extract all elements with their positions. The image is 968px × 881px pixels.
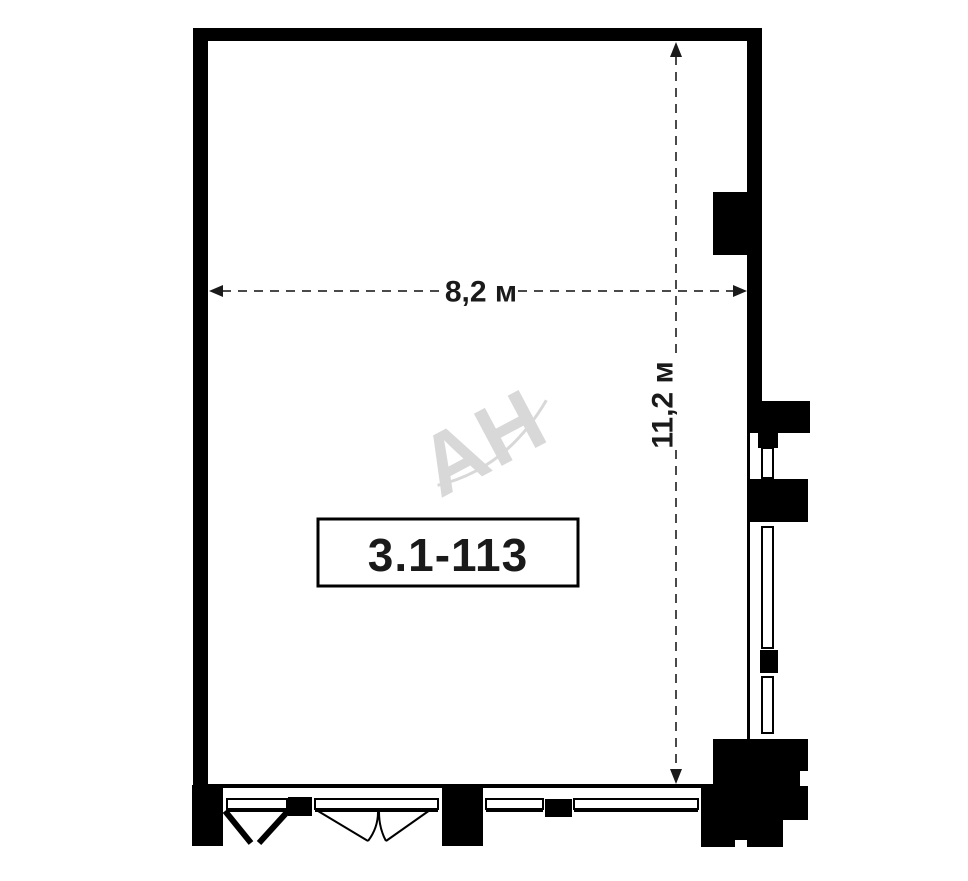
width-dim-arrow-right <box>733 285 747 297</box>
height-dimension: 11,2 м <box>647 42 683 784</box>
width-dimension-label: 8,2 м <box>445 276 517 309</box>
right-facade-column-a <box>747 401 810 433</box>
right-window-3 <box>762 677 773 733</box>
width-dim-arrow-left <box>209 285 223 297</box>
swing-arc-left <box>368 812 378 841</box>
swing-arc-right <box>379 812 386 841</box>
bottom-door-mullion <box>288 797 312 816</box>
entrance-doors <box>225 810 430 843</box>
bottom-window-1 <box>227 799 287 809</box>
height-dim-arrow-bottom <box>670 769 682 784</box>
bottom-center-pier <box>442 786 483 846</box>
right-facade-mullion <box>760 650 778 673</box>
unit-label-text: 3.1-113 <box>368 529 528 581</box>
agency-watermark: АН <box>404 365 573 516</box>
watermark-text: АН <box>404 371 562 516</box>
height-dimension-label: 11,2 м <box>647 361 680 448</box>
bottom-window-2-sill <box>315 808 438 812</box>
height-dim-arrow-top <box>670 42 682 57</box>
unit-label-box: 3.1-113 <box>318 519 578 586</box>
double-door-swing-thin <box>318 810 430 841</box>
door-leaf-right <box>259 810 289 843</box>
right-wall-upper <box>747 41 762 401</box>
bottom-left-pier <box>192 785 223 846</box>
right-window-2 <box>762 527 773 648</box>
double-door-leaves-thick <box>225 810 289 843</box>
bottom-window-1-sill <box>227 808 287 812</box>
top-wall <box>193 28 762 41</box>
floor-plan-drawing: АН <box>0 0 968 881</box>
width-dimension: 8,2 м <box>209 276 747 309</box>
door-leaf-left <box>225 811 251 843</box>
right-facade-column-b <box>747 479 808 522</box>
bottom-window-2 <box>315 799 438 809</box>
right-window-1 <box>762 448 773 478</box>
left-wall <box>193 28 208 786</box>
swing-leaf-left <box>318 811 368 841</box>
bottom-window-3-sill <box>486 808 543 812</box>
floor-plan-canvas: АН <box>0 0 968 881</box>
swing-leaf-right <box>386 810 430 841</box>
bottom-window-3 <box>486 799 543 809</box>
bottom-right-corner-column <box>701 739 808 847</box>
right-facade-inner-line <box>747 433 750 739</box>
bottom-window-mullion <box>545 799 572 817</box>
right-wall-pilaster <box>713 192 747 255</box>
bottom-window-4-sill <box>574 808 698 812</box>
right-facade-column-a-stub <box>758 433 778 448</box>
bottom-window-4 <box>574 799 698 809</box>
